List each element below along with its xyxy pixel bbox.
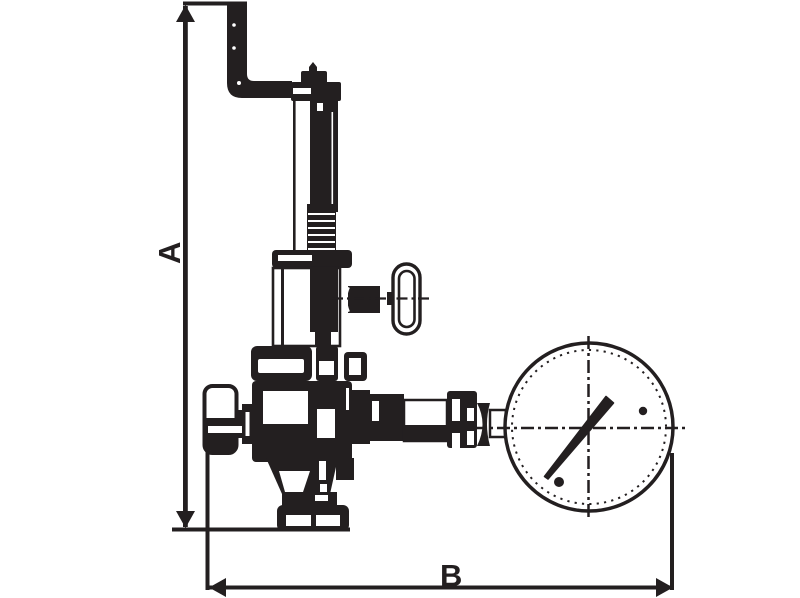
svg-text:A: A: [152, 242, 187, 264]
svg-text:B: B: [440, 558, 462, 593]
